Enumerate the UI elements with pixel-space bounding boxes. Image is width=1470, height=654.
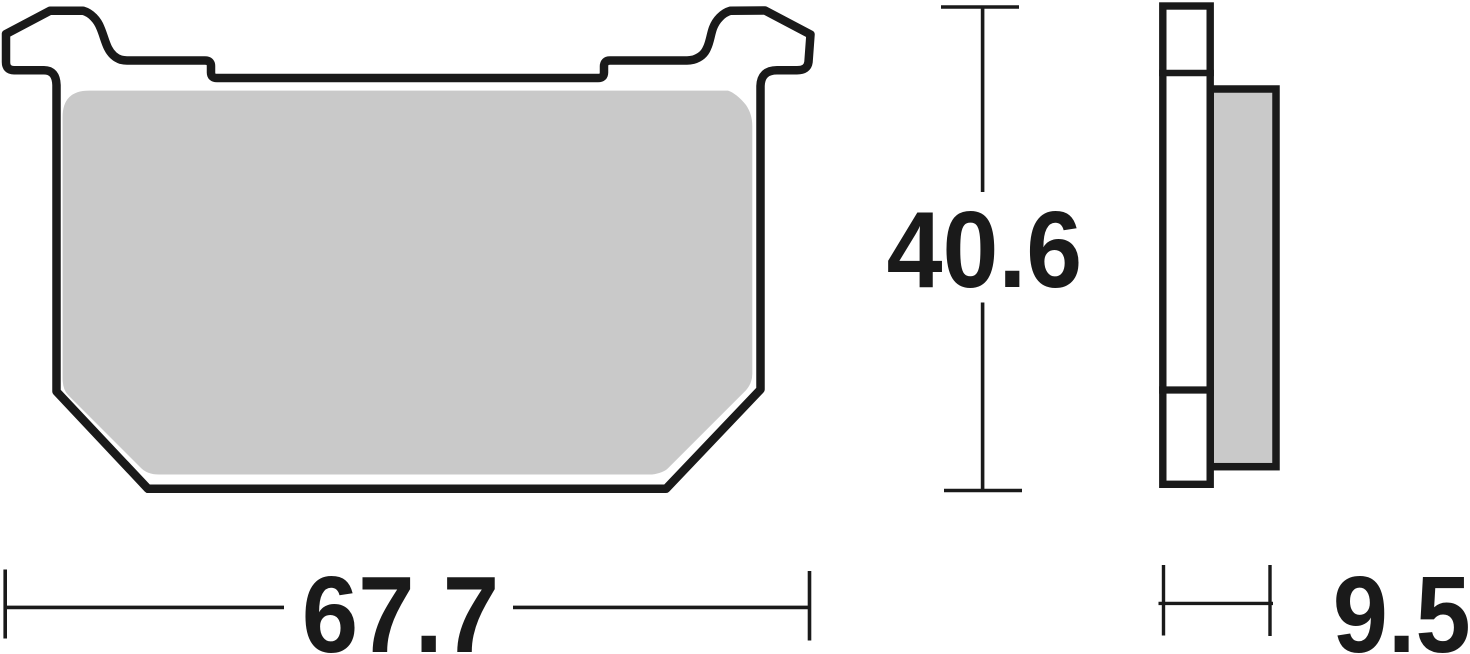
svg-text:9.5: 9.5 bbox=[1333, 554, 1470, 654]
svg-text:40.6: 40.6 bbox=[887, 189, 1083, 311]
svg-text:67.7: 67.7 bbox=[302, 554, 500, 654]
